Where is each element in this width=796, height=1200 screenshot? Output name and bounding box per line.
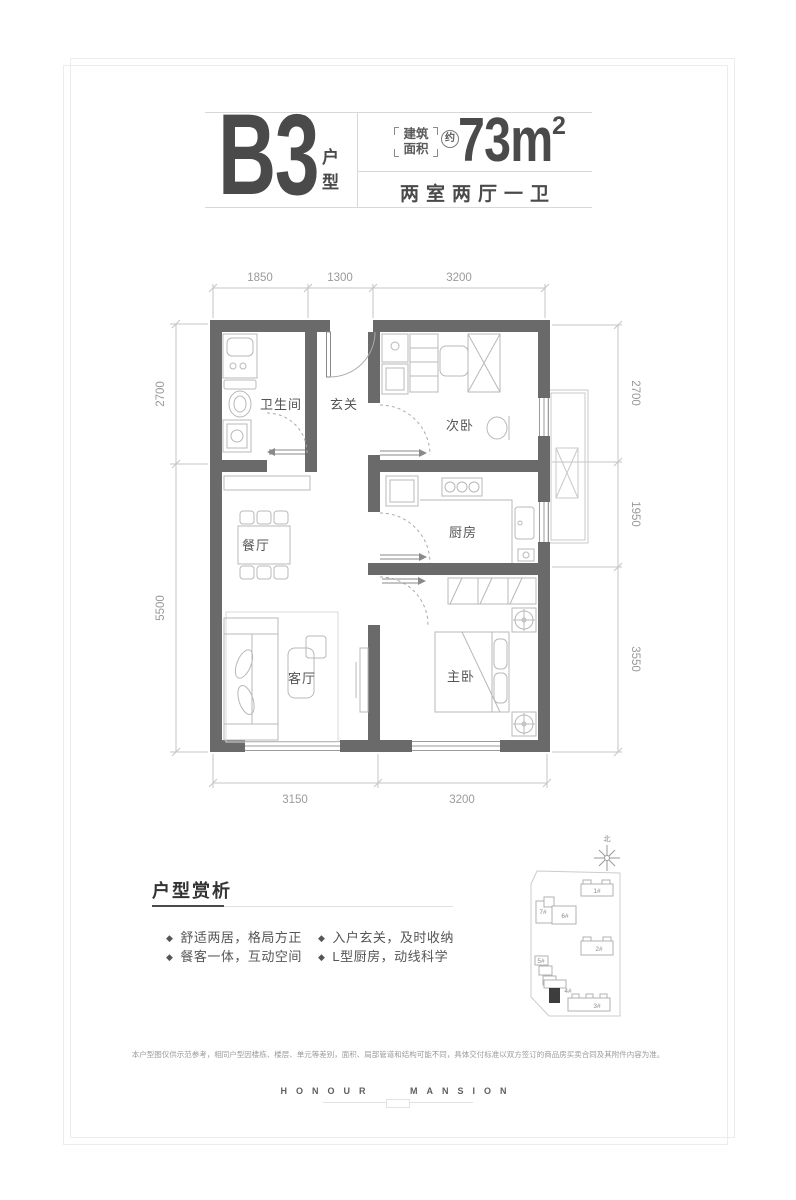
floor-plan-drawing: 1850 1300 3200 3150 3200 2700 5500 2700 …: [0, 0, 796, 1200]
analysis-bullet-3: ◆入户玄关，及时收纳: [318, 927, 454, 946]
room-labels: 卫生间 玄关 次卧 餐厅 厨房 客厅 主卧: [242, 397, 477, 686]
second-bedroom-door: [380, 405, 430, 457]
analysis-bullet-1-text: 舒适两居，格局方正: [180, 930, 302, 945]
walls: [210, 320, 550, 752]
bullet-diamond-icon: ◆: [166, 933, 173, 943]
analysis-bullet-4: ◆L型厨房，动线科学: [318, 946, 448, 965]
dim-bottom-2: 3200: [449, 794, 475, 806]
building-label-3: 3#: [593, 1003, 601, 1010]
building-label-1: 1#: [593, 888, 601, 895]
dim-top-1: 1850: [247, 272, 273, 284]
disclaimer-text: 本户型图仅供示范参考，相同户型因楼栋、楼层、单元等差别，面积、局部管道和结构可能…: [0, 1049, 796, 1060]
analysis-title: 户型赏析: [152, 877, 232, 903]
dim-bottom-1: 3150: [282, 794, 308, 806]
analysis-bullet-1: ◆舒适两居，格局方正: [166, 927, 302, 946]
compass-icon: 北: [594, 835, 620, 871]
bullet-diamond-icon: ◆: [166, 952, 173, 962]
brand-wordmark: HONOUR MANSION: [0, 1086, 796, 1096]
furniture-closet: [448, 578, 536, 604]
dim-right-2: 1950: [629, 501, 641, 527]
brand-seal-icon: [386, 1099, 410, 1108]
bullet-diamond-icon: ◆: [318, 933, 325, 943]
furniture-toilet: [224, 380, 256, 417]
building-label-5: 5#: [537, 958, 545, 965]
doors: [267, 332, 430, 625]
analysis-bullet-3-text: 入户玄关，及时收纳: [332, 930, 454, 945]
dim-left-1: 2700: [155, 381, 167, 407]
room-label-foyer: 玄关: [330, 397, 358, 412]
furniture-washer: [223, 420, 251, 452]
dim-top-3: 3200: [446, 272, 472, 284]
dim-right-3: 3550: [629, 646, 641, 672]
room-label-bathroom: 卫生间: [260, 397, 302, 412]
room-label-living: 客厅: [288, 671, 316, 686]
dim-left-2: 5500: [155, 595, 167, 621]
bathroom-door: [267, 413, 307, 456]
furniture-bathroom-sink: [223, 334, 257, 378]
dim-top-2: 1300: [327, 272, 353, 284]
building-label-6: 6#: [561, 913, 569, 920]
building-label-4: 4#: [564, 988, 572, 995]
bullet-diamond-icon: ◆: [318, 952, 325, 962]
room-label-master-bedroom: 主卧: [447, 669, 475, 684]
room-label-dining: 餐厅: [242, 538, 270, 553]
equipment-platform: [548, 390, 588, 543]
building-label-2: 2#: [595, 946, 603, 953]
analysis-bullet-2-text: 餐客一体，互动空间: [180, 949, 302, 964]
dim-right-1: 2700: [629, 380, 641, 406]
building-label-7: 7#: [539, 909, 547, 916]
site-map: 1# 7# 6# 2# 5# 4# 3# 北: [531, 835, 620, 1016]
furniture-kitchen: [386, 476, 534, 563]
room-label-second-bedroom: 次卧: [446, 418, 474, 433]
building-4-highlighted: [549, 988, 560, 1003]
analysis-bullet-4-text: L型厨房，动线科学: [332, 949, 448, 964]
building-3: [568, 998, 610, 1011]
floorplan-page: { "header": { "unit_code": "B3", "unit_s…: [0, 0, 796, 1200]
analysis-rule-dark: [152, 905, 224, 907]
analysis-bullet-2: ◆餐客一体，互动空间: [166, 946, 302, 965]
room-label-kitchen: 厨房: [449, 525, 477, 540]
dimension-labels: 1850 1300 3200 3150 3200 2700 5500 2700 …: [155, 272, 641, 806]
entrance-door: [327, 332, 376, 377]
kitchen-door: [380, 513, 430, 563]
master-bedroom-door: [380, 577, 428, 625]
north-label: 北: [604, 835, 611, 843]
furniture-dining: [224, 476, 310, 579]
